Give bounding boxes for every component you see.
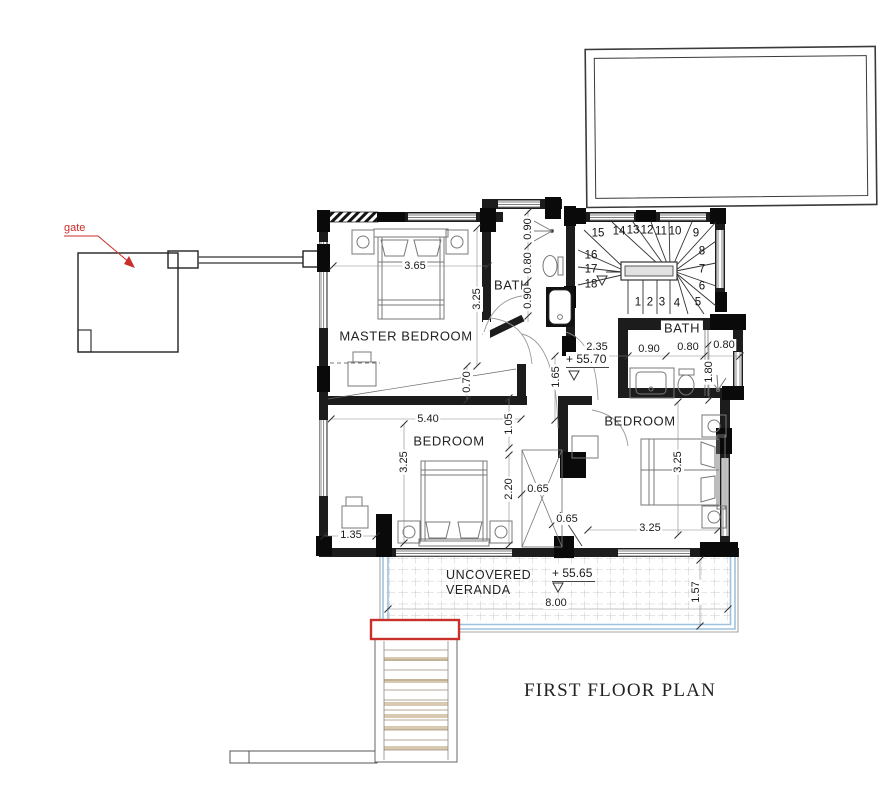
site-wall xyxy=(230,751,377,763)
stair-number-13: 13 xyxy=(627,226,640,237)
level-marker-veranda: + 55.65 xyxy=(552,566,595,582)
dim-bath-right-seg3: 0.80 xyxy=(711,339,736,351)
stair-number-12: 12 xyxy=(641,226,654,237)
dim-bath-top-seg1: 0.90 xyxy=(522,216,534,241)
drawing-title: FIRST FLOOR PLAN xyxy=(524,680,716,702)
stair-number-8: 8 xyxy=(699,247,705,258)
gate-structure xyxy=(78,251,318,352)
dim-master-width: 3.65 xyxy=(402,260,427,272)
dim-veranda-depth: 1.57 xyxy=(690,579,702,604)
room-label-bath-right: BATH xyxy=(661,321,703,336)
veranda-label-line2: VERANDA xyxy=(446,583,531,598)
level-marker-hall: + 55.70 xyxy=(566,352,609,368)
stair-number-14: 14 xyxy=(613,227,626,238)
dim-master-height: 3.25 xyxy=(471,286,483,311)
external-staircase xyxy=(375,639,457,762)
dim-bedroom-left-height: 3.25 xyxy=(398,449,410,474)
veranda-label-line1: UNCOVERED xyxy=(446,568,531,583)
stair-number-16: 16 xyxy=(585,251,598,262)
floor-plan-drawing xyxy=(0,0,884,789)
stair-number-18: 18 xyxy=(585,280,598,291)
dim-bedroom-left-inner: 2.20 xyxy=(503,476,515,501)
stair-number-15: 15 xyxy=(592,229,605,240)
dim-hall-length: 2.35 xyxy=(584,341,609,353)
stair-number-9: 9 xyxy=(693,229,699,240)
stair-number-11: 11 xyxy=(655,227,667,238)
roof-outline xyxy=(585,46,877,207)
dim-bath-right-seg1: 0.90 xyxy=(636,343,661,355)
dim-bedroom-right-width: 3.25 xyxy=(637,522,662,534)
dim-hall-width: 1.05 xyxy=(503,411,515,436)
dim-bedroom-left-width: 5.40 xyxy=(415,413,440,425)
dim-veranda-width: 8.00 xyxy=(543,597,568,609)
dim-bath-top-seg3: 0.90 xyxy=(522,285,534,310)
room-label-bedroom-left: BEDROOM xyxy=(413,434,484,449)
stair-number-4: 4 xyxy=(674,299,680,310)
stair-landing-red xyxy=(371,620,459,639)
dim-closet-a: 0.65 xyxy=(525,483,550,495)
stair-number-2: 2 xyxy=(647,298,653,309)
dim-bath-right-seg2: 0.80 xyxy=(675,341,700,353)
stair-number-1: 1 xyxy=(635,298,641,309)
stair-number-10: 10 xyxy=(669,227,682,238)
dim-bath-top-seg2: 0.80 xyxy=(522,250,534,275)
dim-closet-b: 0.65 xyxy=(554,513,579,525)
stair-number-5: 5 xyxy=(695,298,701,309)
dim-bath-right-depth: 1.80 xyxy=(703,359,715,384)
dim-wall-offset: 0.70 xyxy=(461,369,473,394)
stair-number-3: 3 xyxy=(659,298,665,309)
veranda-label: UNCOVERED VERANDA xyxy=(446,568,531,598)
floor-plan: gate MASTER BEDROOM BATH BATH BEDROOM BE… xyxy=(0,0,884,789)
gate-label: gate xyxy=(64,222,85,234)
dim-bedroom-right-height: 3.25 xyxy=(672,449,684,474)
gate-callout-arrow xyxy=(64,236,135,268)
dim-hall-depth: 1.65 xyxy=(550,364,562,389)
room-label-bedroom-right: BEDROOM xyxy=(604,414,675,429)
stair-number-7: 7 xyxy=(699,265,705,276)
stair-number-17: 17 xyxy=(585,265,598,276)
dim-desk-width: 1.35 xyxy=(338,529,363,541)
room-label-master-bedroom: MASTER BEDROOM xyxy=(339,329,472,344)
stair-number-6: 6 xyxy=(699,282,705,293)
